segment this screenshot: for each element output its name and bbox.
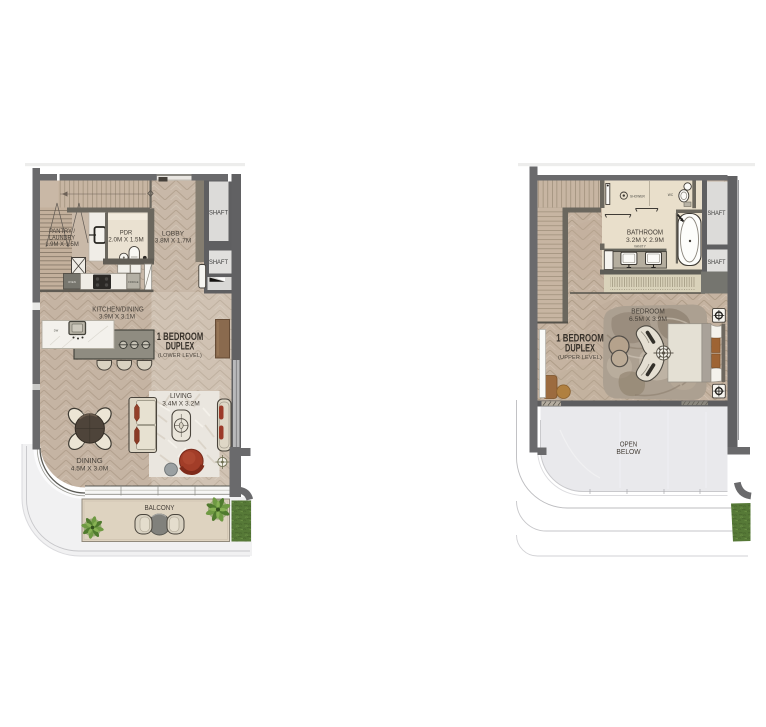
- svg-text:1.9M X 1.5M: 1.9M X 1.5M: [45, 241, 79, 248]
- svg-text:VANITY: VANITY: [634, 245, 647, 249]
- svg-text:SHAFT: SHAFT: [209, 210, 228, 217]
- svg-text:3.4M X 3.2M: 3.4M X 3.2M: [162, 400, 200, 407]
- svg-text:SHAFT: SHAFT: [209, 259, 228, 266]
- svg-text:6.5M X 3.9M: 6.5M X 3.9M: [629, 316, 667, 323]
- svg-text:LIVING: LIVING: [170, 391, 192, 400]
- svg-text:KITCHEN/DINING: KITCHEN/DINING: [92, 305, 144, 314]
- svg-text:4.5M X 3.0M: 4.5M X 3.0M: [71, 466, 109, 473]
- svg-text:SHOWER: SHOWER: [630, 194, 646, 198]
- svg-text:DUPLEX: DUPLEX: [565, 343, 595, 355]
- svg-text:BEDROOM: BEDROOM: [631, 307, 665, 316]
- svg-text:DUPLEX: DUPLEX: [166, 341, 195, 353]
- svg-text:SHAFT: SHAFT: [708, 259, 726, 266]
- svg-text:BELOW: BELOW: [616, 447, 640, 456]
- svg-text:FRIDGE: FRIDGE: [128, 280, 139, 284]
- svg-text:DINING: DINING: [76, 456, 103, 465]
- svg-text:(UPPER LEVEL): (UPPER LEVEL): [558, 355, 602, 361]
- svg-text:2.0M X 1.5M: 2.0M X 1.5M: [108, 237, 144, 244]
- svg-text:3.9M X 3.1M: 3.9M X 3.1M: [99, 314, 135, 321]
- svg-text:PDR: PDR: [120, 230, 133, 237]
- svg-text:OVEN: OVEN: [68, 280, 76, 284]
- svg-text:3.8M X 1.7M: 3.8M X 1.7M: [155, 238, 192, 245]
- svg-text:LOBBY: LOBBY: [162, 231, 185, 238]
- svg-text:SHAFT: SHAFT: [708, 210, 726, 217]
- svg-text:BATHROOM: BATHROOM: [627, 228, 663, 237]
- svg-text:DW: DW: [54, 329, 59, 333]
- svg-text:3.2M X 2.9M: 3.2M X 2.9M: [626, 237, 664, 244]
- svg-text:(LOWER LEVEL): (LOWER LEVEL): [158, 353, 202, 359]
- svg-text:WC: WC: [668, 193, 674, 197]
- svg-text:BALCONY: BALCONY: [145, 503, 175, 512]
